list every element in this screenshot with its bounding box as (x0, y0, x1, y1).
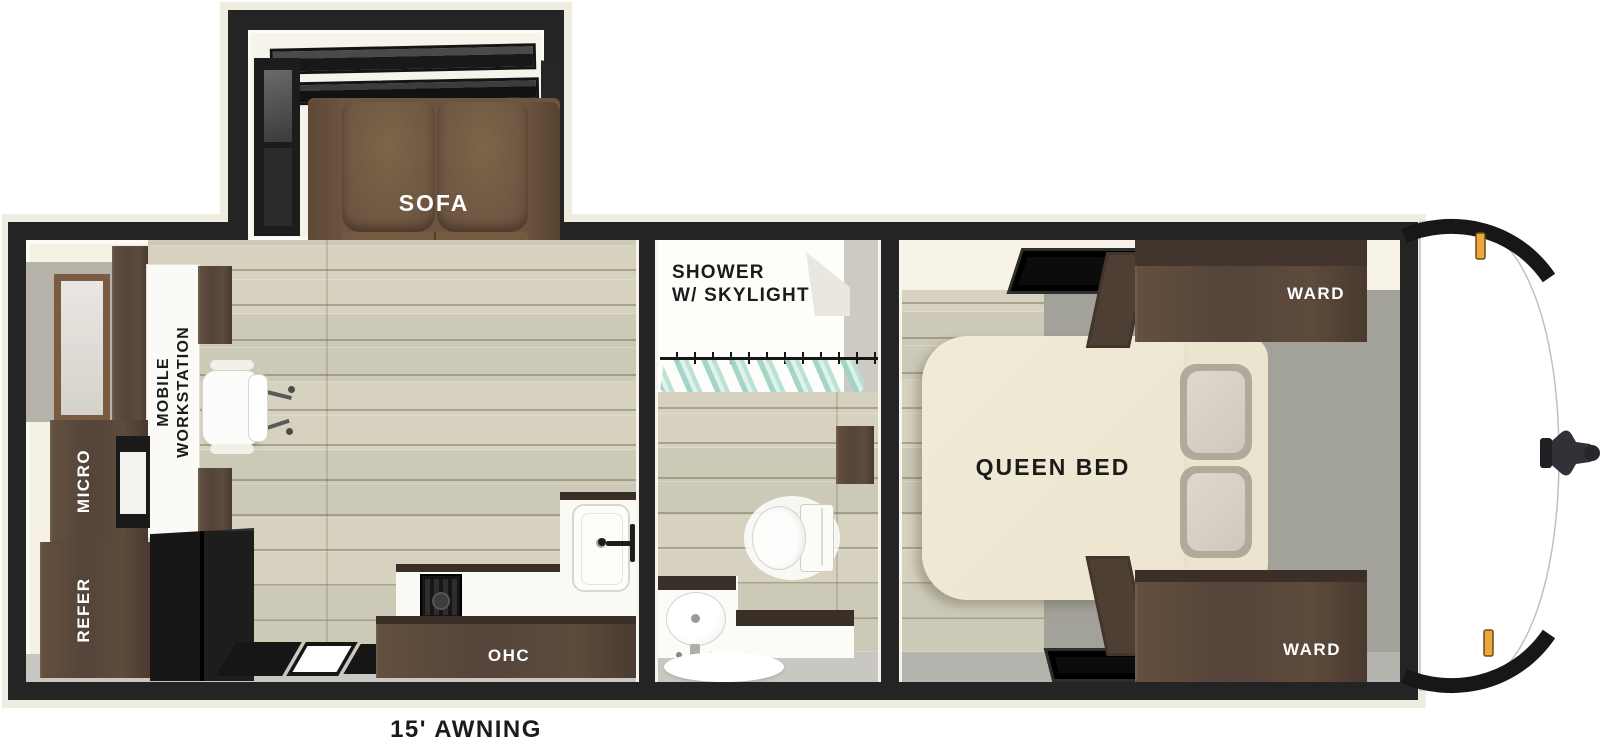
slideout-window-left-pane-lower (264, 148, 292, 226)
wall-top-left-segment (8, 222, 228, 240)
ward-cabinet-bottom: WARD (1135, 570, 1367, 682)
wall-top-right-segment (564, 222, 1418, 240)
kitchen-faucet-knob (598, 538, 606, 546)
cooktop-burner (432, 592, 450, 610)
workstation-label: MOBILE WORKSTATION (154, 317, 194, 467)
bath-counter-right-edge (736, 610, 854, 626)
office-chair-back (248, 374, 268, 442)
kitchen-sink (572, 504, 630, 592)
kitchen-faucet-arm (606, 541, 634, 546)
bath-wall-right (878, 240, 902, 682)
ohc-label: OHC (376, 646, 642, 666)
bath-wall-cabinet (836, 426, 874, 484)
ward-bottom-label: WARD (1283, 640, 1341, 660)
office-chair-armrest-2 (210, 444, 254, 454)
office-chair-armrest (210, 360, 254, 370)
bath-vanity-edge (658, 576, 736, 590)
kitchen-sink-basin (581, 513, 623, 585)
bath-counter-right (736, 610, 854, 658)
floorplan-stage: SOFA MOBILE WORKSTATION MICRO REFER (0, 0, 1600, 751)
ward-cabinet-top: WARD (1135, 266, 1367, 342)
front-cap (1398, 204, 1600, 714)
slideout-window-top-1 (270, 43, 536, 75)
ward-top-label: WARD (1287, 284, 1345, 304)
clearance-light-top (1476, 233, 1485, 259)
tongue-jack-coupler (1584, 445, 1600, 461)
workstation-ohc-lower (198, 468, 232, 538)
wall-bottom (8, 682, 1418, 700)
office-chair-wheel-1 (288, 386, 295, 393)
queen-bed-mattress: QUEEN BED (922, 336, 1184, 600)
microwave (116, 436, 150, 528)
shower-curtain (660, 360, 868, 392)
micro-label: MICRO (74, 449, 94, 513)
front-cap-body (1420, 222, 1559, 690)
bath-sink-drain (691, 614, 700, 623)
microwave-door (120, 452, 146, 514)
kitchen-ohc-cabinet: OHC (376, 616, 642, 678)
pantry-cabinet (112, 246, 148, 442)
tongue-jack-base (1540, 438, 1552, 468)
bath-mat (664, 652, 784, 682)
shower-label: SHOWER W/ SKYLIGHT (672, 262, 810, 308)
cooktop (420, 574, 462, 620)
slideout-window-left-pane-upper (264, 70, 292, 142)
queen-bed-label: QUEEN BED (922, 454, 1184, 481)
toilet-bowl (752, 506, 806, 570)
pillow-2 (1187, 473, 1245, 551)
workstation-ohc-upper (198, 266, 232, 344)
office-chair-wheel-2 (286, 428, 293, 435)
refer-label: REFER (74, 577, 94, 642)
sofa-label: SOFA (308, 190, 560, 217)
refer-cabinet (40, 542, 150, 678)
awning-label: 15' AWNING (326, 716, 606, 744)
pillow-1 (1187, 371, 1245, 453)
bath-wall-left (636, 240, 658, 682)
toilet-tank-seam (821, 508, 823, 566)
rear-door (54, 274, 110, 422)
clearance-light-bottom (1484, 630, 1493, 656)
wall-left (8, 222, 26, 700)
